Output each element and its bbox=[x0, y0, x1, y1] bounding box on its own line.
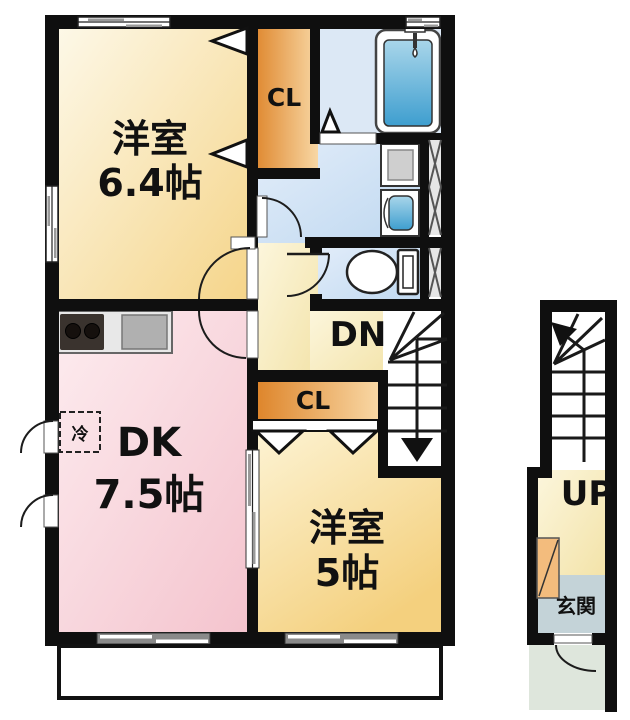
entrance-porch bbox=[529, 645, 613, 710]
shoe-cabinet bbox=[537, 538, 559, 598]
sliding-door-dk-room5 bbox=[246, 450, 259, 568]
room64-name-label: 洋室 bbox=[112, 117, 188, 161]
balcony-window-dk bbox=[97, 633, 210, 644]
washing-machine bbox=[381, 144, 419, 186]
closet-upper-label: CL bbox=[267, 83, 301, 112]
window-top-left bbox=[78, 17, 170, 27]
stairs-down-label: DN bbox=[330, 315, 387, 355]
kitchen-sink-icon bbox=[122, 315, 167, 349]
room5-size-label: 5帖 bbox=[315, 551, 379, 595]
door-dk-left-1 bbox=[21, 421, 58, 453]
balcony bbox=[59, 646, 441, 698]
room5-name-label: 洋室 bbox=[309, 506, 385, 550]
window-left-wall bbox=[46, 186, 58, 262]
stairs-up-label: UP bbox=[561, 474, 614, 514]
door-dk-left-2 bbox=[21, 495, 58, 527]
balcony-window-room5 bbox=[285, 633, 398, 644]
window-top-right bbox=[406, 17, 440, 27]
floorplan-page: 洋室 6.4帖 CL DN CL DK 7.5帖 洋室 5帖 冷 UP 玄関 bbox=[0, 0, 630, 720]
kitchen-counter bbox=[57, 311, 172, 353]
dk-size-label: 7.5帖 bbox=[94, 472, 205, 518]
refrigerator-label: 冷 bbox=[72, 424, 89, 445]
closet-lower-label: CL bbox=[296, 386, 330, 415]
dk-name-label: DK bbox=[117, 420, 183, 466]
bathtub bbox=[376, 24, 440, 133]
floorplan-canvas: 洋室 6.4帖 CL DN CL DK 7.5帖 洋室 5帖 冷 UP 玄関 bbox=[0, 0, 630, 720]
genkan-label: 玄関 bbox=[556, 594, 596, 618]
dining-kitchen-room bbox=[52, 305, 252, 635]
room64-size-label: 6.4帖 bbox=[97, 161, 202, 205]
vanity-sink bbox=[381, 190, 419, 236]
toilet bbox=[347, 250, 418, 294]
pipe-shaft bbox=[429, 140, 441, 297]
hallway bbox=[258, 243, 318, 383]
